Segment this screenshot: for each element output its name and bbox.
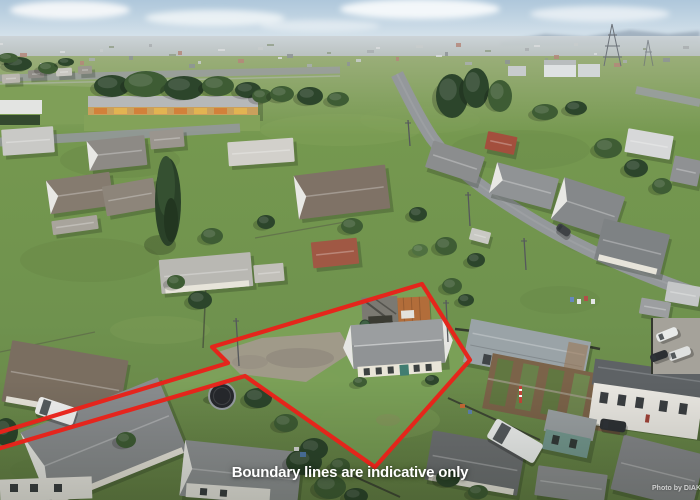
school-window xyxy=(194,108,207,114)
distant-house xyxy=(376,47,380,49)
distant-house xyxy=(396,57,399,61)
house xyxy=(253,262,288,287)
distant-house xyxy=(614,63,621,67)
distant-house xyxy=(278,57,282,59)
school-window xyxy=(94,108,107,114)
distant-house xyxy=(60,51,65,53)
house xyxy=(311,237,363,272)
school-window xyxy=(134,108,147,114)
distant-house xyxy=(545,58,548,60)
distant-house xyxy=(20,53,27,57)
distant-house xyxy=(258,47,263,50)
distant-house xyxy=(100,49,103,52)
distant-house xyxy=(347,62,350,66)
distant-house xyxy=(149,44,152,47)
distant-house xyxy=(534,45,540,47)
school-window xyxy=(234,108,247,114)
distant-house xyxy=(367,50,374,53)
distant-house xyxy=(505,60,510,64)
garden-item xyxy=(584,296,588,301)
distant-house xyxy=(89,58,95,61)
photo-credit-watermark: Photo by DIAKRIT xyxy=(652,485,700,492)
vignette xyxy=(0,380,700,500)
distant-house xyxy=(109,46,114,48)
distant-house xyxy=(356,59,361,62)
aerial-photo: Boundary lines are indicative only Photo… xyxy=(0,0,700,500)
distant-house xyxy=(189,64,195,68)
distant-house xyxy=(416,45,423,48)
distant-house xyxy=(178,51,182,55)
distant-house xyxy=(683,46,689,49)
school-window xyxy=(154,108,167,114)
distant-house xyxy=(0,43,3,45)
distant-house xyxy=(287,54,293,58)
distant-house xyxy=(465,62,472,65)
distant-house xyxy=(594,53,597,55)
distant-house xyxy=(525,48,529,51)
distant-house xyxy=(663,58,670,62)
distant-house xyxy=(307,64,312,67)
distant-house xyxy=(445,52,448,56)
distant-house xyxy=(574,43,578,46)
house xyxy=(87,135,151,175)
distant-house xyxy=(456,43,461,47)
distant-house xyxy=(80,61,84,65)
distant-house xyxy=(327,52,331,54)
house xyxy=(149,128,188,153)
garden-item xyxy=(570,297,574,302)
garden-item xyxy=(577,299,581,304)
distant-house xyxy=(129,56,133,60)
distant-house xyxy=(218,49,225,51)
lawn-patch xyxy=(20,238,160,282)
carpark xyxy=(652,318,700,374)
distant-house xyxy=(169,54,176,56)
school-window xyxy=(114,108,127,114)
distant-house xyxy=(554,55,559,59)
hedge xyxy=(0,115,40,125)
aerial-scene xyxy=(0,0,700,500)
distant-house xyxy=(267,44,274,46)
house xyxy=(1,126,58,160)
garden-item xyxy=(591,299,595,304)
distant-house xyxy=(198,61,201,64)
boundary-caption: Boundary lines are indicative only xyxy=(232,464,469,481)
lawn-patch xyxy=(110,316,210,344)
distant-house xyxy=(643,48,646,50)
distant-house xyxy=(485,50,491,52)
school-window xyxy=(214,108,227,114)
distant-house xyxy=(623,60,627,63)
school-window xyxy=(174,108,187,114)
grandstand xyxy=(0,100,42,114)
subject-house xyxy=(342,318,455,380)
distant-house xyxy=(436,55,442,57)
house xyxy=(227,138,298,171)
distant-house xyxy=(238,59,244,63)
